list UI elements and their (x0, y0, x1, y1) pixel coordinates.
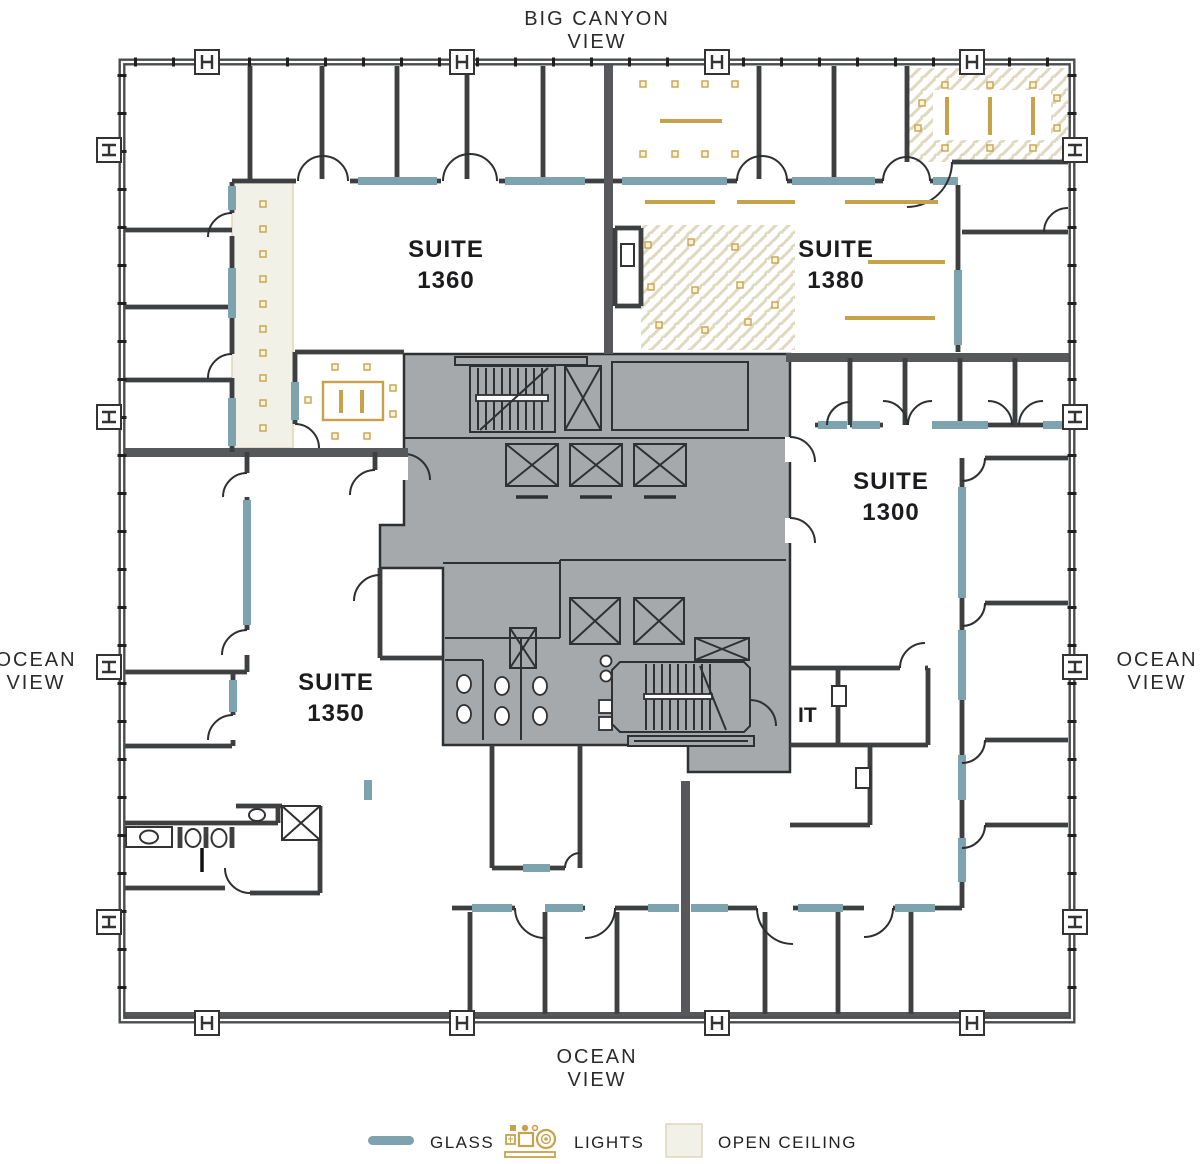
lights-legend-label: LIGHTS (574, 1133, 644, 1152)
suite-1350-number: 1350 (307, 700, 364, 727)
corner-light-fixture (933, 90, 1051, 140)
open-ceiling-areas (232, 182, 293, 448)
column-icon (97, 655, 121, 679)
floorplan-svg: BIG CANYON VIEW OCEAN VIEW OCEAN VIEW OC… (0, 0, 1200, 1164)
view-label-top-line1: BIG CANYON (524, 8, 670, 30)
column-icon (705, 1011, 729, 1035)
suite-1360-number: 1360 (417, 267, 474, 294)
column-icon (705, 50, 729, 74)
column-icon (450, 1011, 474, 1035)
toilet (212, 829, 227, 847)
column-icon (97, 138, 121, 162)
equipment-panel (856, 768, 870, 788)
suite-1380-number: 1380 (807, 267, 864, 294)
wall-1380-1300 (786, 353, 1072, 362)
column-icon (97, 910, 121, 934)
open-ceiling-legend-swatch (666, 1124, 702, 1157)
open-ceiling-legend-label: OPEN CEILING (718, 1133, 857, 1152)
wall-1350-1300 (681, 781, 690, 1020)
suite-1360-label: SUITE (408, 236, 484, 263)
view-label-left-line2: VIEW (6, 672, 65, 694)
suite-1300-number: 1300 (862, 499, 919, 526)
glass-legend-swatch (368, 1136, 414, 1145)
view-label-top-line2: VIEW (567, 31, 626, 53)
column-icon (195, 50, 219, 74)
suite-1300-label: SUITE (853, 468, 929, 495)
wall-1360-1380 (604, 62, 613, 354)
suite-1380-label: SUITE (798, 236, 874, 263)
it-room-label: IT (798, 704, 817, 727)
column-icon (1063, 138, 1087, 162)
column-icon (450, 50, 474, 74)
view-label-bottom-line2: VIEW (567, 1069, 626, 1091)
hatch-area-suite1380 (641, 225, 795, 350)
view-label-right-line2: VIEW (1127, 672, 1186, 694)
view-label-left-line1: OCEAN (0, 649, 77, 671)
column-icon (97, 405, 121, 429)
column-icon (1063, 910, 1087, 934)
equipment-panel (621, 244, 634, 266)
toilet (186, 829, 201, 847)
sink (249, 809, 265, 821)
glass-legend-label: GLASS (430, 1133, 494, 1152)
open-ceiling-strip (232, 182, 293, 448)
suite-1350-label: SUITE (298, 669, 374, 696)
view-label-bottom-line1: OCEAN (556, 1046, 637, 1068)
building-core (380, 354, 815, 772)
view-label-right-line1: OCEAN (1116, 649, 1197, 671)
column-icon (195, 1011, 219, 1035)
sink (140, 831, 158, 844)
floorplan-page: BIG CANYON VIEW OCEAN VIEW OCEAN VIEW OC… (0, 0, 1200, 1164)
wall-1360-1350 (122, 448, 408, 457)
column-icon (960, 1011, 984, 1035)
column-icon (960, 50, 984, 74)
equipment-panel (832, 686, 846, 706)
column-icon (1063, 405, 1087, 429)
column-icon (1063, 655, 1087, 679)
